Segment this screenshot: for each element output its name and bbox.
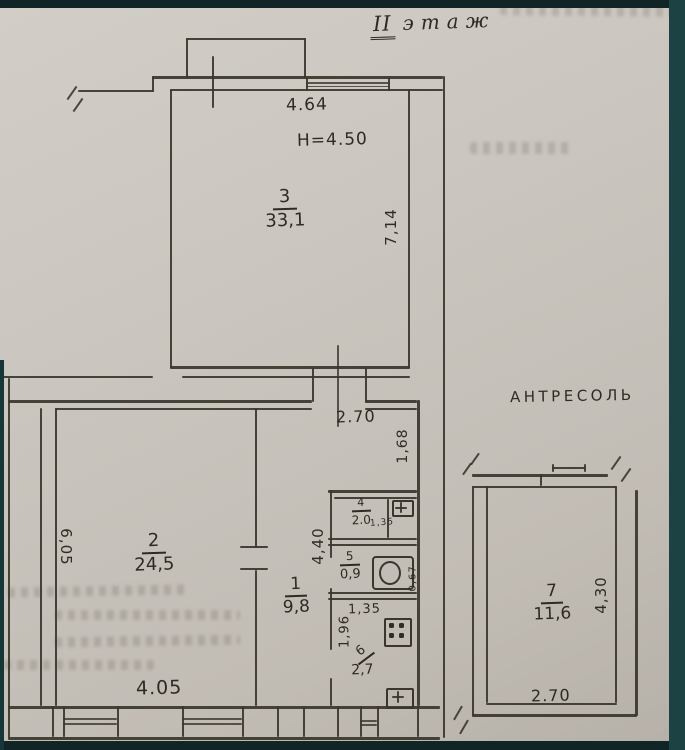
floor-plan-scan: IIэтаж 4.64 H=4.50 7,14 3 33,1: [0, 0, 685, 750]
bottom-wall-divider: [182, 706, 184, 737]
room1-label: 1 9,8: [273, 575, 318, 617]
floor-numeral: II: [370, 11, 396, 40]
room2-right-wall: [255, 570, 257, 706]
room3-right-wall: [408, 89, 410, 368]
dim-top-width: 4.64: [286, 94, 328, 115]
room2-right-wall: [255, 408, 257, 548]
bottom-wall-divider: [117, 706, 119, 737]
balcony-wall: [186, 38, 306, 40]
wall-tick: [212, 56, 214, 108]
door-jamb: [240, 546, 268, 548]
block-left-wall: [8, 378, 10, 738]
break-mark: [470, 453, 480, 466]
dim-room7-width: 2.70: [531, 685, 571, 705]
exterior-wall: [78, 90, 154, 92]
dim-room7-side: 4,30: [592, 575, 610, 615]
room4-room5-wall: [328, 538, 417, 540]
room3-bottom-wall-inner: [182, 376, 410, 378]
bleedthrough-artifact: [55, 635, 240, 648]
window-symbol: [306, 86, 390, 88]
column-left-wall: [330, 490, 332, 558]
washbasin-icon: [395, 507, 407, 509]
break-mark: [453, 706, 463, 721]
bottom-wall-outer: [8, 737, 440, 740]
bottom-wall-divider: [242, 706, 244, 737]
room3-bottom-wall: [170, 366, 410, 369]
bottom-wall-divider: [360, 706, 362, 737]
bleedthrough-artifact: [470, 142, 570, 154]
building-edge: [443, 76, 445, 738]
dim-kitchen-width: 1,35: [348, 602, 381, 618]
vestibule-wall: [365, 368, 367, 402]
bottom-wall-divider: [377, 706, 379, 737]
dim-vestibule-width: 2.70: [336, 406, 376, 426]
dim-mark: [552, 467, 586, 469]
room2-number: 2: [142, 532, 166, 555]
room5-label: 5 0,9: [335, 550, 364, 582]
dim-room2-width: 4.05: [136, 676, 183, 699]
west-wall: [0, 376, 153, 378]
room6-label: 6 2,7: [345, 642, 378, 677]
room7-number: 7: [540, 583, 564, 605]
room5-number: 5: [340, 550, 360, 566]
block-right-wall: [417, 400, 420, 706]
bottom-wall-divider: [277, 706, 279, 737]
room2-area: 24,5: [126, 553, 183, 576]
stove-burner: [399, 623, 404, 628]
dim-niche: 1,68: [395, 428, 411, 464]
sink-icon: [392, 696, 404, 698]
window-symbol: [63, 723, 117, 725]
window-symbol: [360, 720, 377, 722]
photo-edge: [0, 741, 685, 750]
mezz-right-wall: [635, 490, 638, 716]
bleedthrough-artifact: [8, 584, 188, 597]
window-symbol: [63, 718, 117, 720]
window-symbol: [182, 718, 242, 720]
block-top-wall-inner: [55, 408, 312, 410]
break-mark: [621, 468, 632, 482]
room3-label: 3 33,1: [259, 187, 310, 232]
bleedthrough-artifact: [55, 610, 240, 620]
room4-top-wall: [328, 490, 417, 493]
bottom-wall-divider: [303, 706, 305, 737]
block-top-wall: [365, 400, 417, 403]
mezz-left-wall-inner: [486, 486, 488, 703]
photo-edge: [0, 360, 4, 750]
dim-mark: [584, 464, 586, 472]
window-symbol: [306, 82, 390, 84]
door-jamb: [240, 568, 268, 570]
window-jamb: [388, 78, 390, 91]
room7-label: 7 11,6: [525, 582, 578, 624]
room5-room6-wall: [328, 592, 417, 594]
room4-room5-wall: [328, 544, 417, 546]
mezzanine-label: АНТРЕСОЛЬ: [510, 386, 635, 406]
stove-burner: [389, 623, 394, 628]
window-symbol: [360, 724, 377, 726]
room5-area: 0,9: [336, 565, 365, 582]
mezz-right-wall-inner: [615, 486, 617, 703]
dim-room4-small: 1,35: [370, 517, 395, 529]
column-left-wall: [330, 678, 332, 706]
corridor-wall: [40, 408, 42, 706]
stove-icon: [384, 618, 412, 647]
dim-room2-side: 6,05: [57, 527, 75, 567]
room3-left-wall: [170, 89, 172, 368]
dim-mark: [552, 464, 554, 472]
window-symbol: [182, 723, 242, 725]
room4-number: 4: [351, 497, 370, 512]
bottom-wall-inner: [8, 706, 440, 709]
photo-edge: [669, 0, 685, 750]
dim-ceiling-height: H=4.50: [297, 129, 368, 151]
stove-burner: [399, 633, 404, 638]
exterior-wall: [152, 76, 443, 79]
balcony-wall: [186, 38, 188, 78]
dim-wc-side: 0,67: [408, 566, 419, 592]
bottom-wall-divider: [417, 706, 419, 737]
floor-word: этаж: [402, 8, 496, 35]
window-jamb: [306, 78, 308, 91]
break-mark: [73, 98, 84, 112]
dim-column: 4,40: [309, 526, 327, 566]
break-mark: [67, 86, 78, 100]
vestibule-wall: [312, 368, 314, 402]
room3-number: 3: [273, 188, 297, 211]
break-mark: [459, 720, 469, 735]
room5-room6-wall: [328, 598, 417, 600]
room7-area: 11,6: [526, 603, 579, 625]
toilet-icon: [379, 561, 401, 585]
mezz-left-wall: [472, 486, 474, 716]
room3-area: 33,1: [260, 209, 311, 232]
bottom-wall-divider: [63, 706, 65, 737]
room6-area: 2,7: [346, 660, 379, 678]
room2-label: 2 24,5: [125, 531, 182, 576]
mezz-wall-divider: [540, 474, 542, 486]
bottom-wall-divider: [337, 706, 339, 737]
block-top-wall: [8, 400, 312, 403]
page-title: IIэтаж: [370, 8, 496, 40]
bleedthrough-artifact: [4, 660, 154, 670]
mezz-top-wall-inner: [472, 486, 617, 488]
photo-edge: [0, 0, 685, 8]
sink-icon: [386, 688, 414, 709]
break-mark: [611, 456, 622, 470]
mezz-bottom-wall: [472, 714, 637, 717]
stove-burner: [389, 633, 394, 638]
room1-area: 9,8: [274, 596, 319, 617]
bottom-wall-divider: [52, 706, 54, 737]
dim-room3-side: 7,14: [382, 208, 400, 246]
room1-number: 1: [284, 576, 308, 598]
balcony-wall: [304, 38, 306, 78]
